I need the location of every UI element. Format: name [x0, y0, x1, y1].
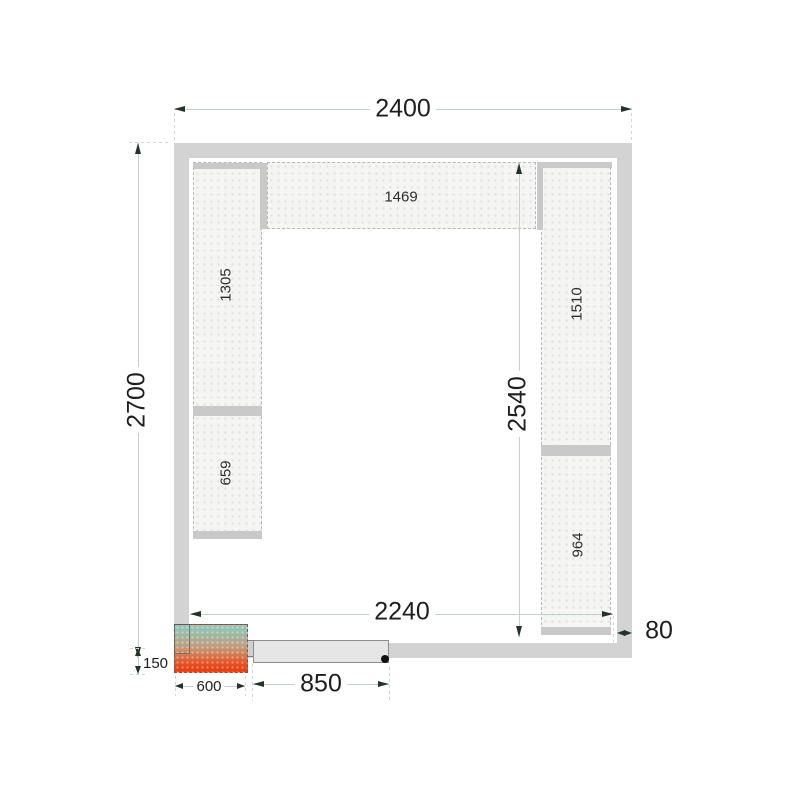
bracket-left-divider — [193, 406, 262, 416]
shelf-left-upper-label: 1305 — [218, 268, 235, 301]
dim-protrusion-ext-top — [130, 648, 146, 649]
bracket-right-divider — [541, 445, 611, 456]
arrow-left-icon — [174, 106, 185, 112]
dim-outer-width-ext-left — [174, 113, 175, 140]
bracket-right-top-vertical — [537, 162, 543, 230]
dim-outer-width-label: 2400 — [370, 96, 436, 123]
dim-door-ext-left — [252, 664, 253, 701]
shelf-right-lower-label: 964 — [570, 532, 587, 557]
wall-right — [617, 143, 632, 658]
arrow-left-icon — [190, 611, 201, 617]
arrow-right-icon — [621, 106, 632, 112]
dim-inner-depth-label: 2540 — [505, 371, 532, 437]
dim-protrusion-ext-bottom — [130, 674, 146, 675]
dim-unit-ext-left — [175, 676, 176, 696]
bracket-right-top-horizontal — [537, 162, 612, 168]
bracket-right-bottom — [541, 627, 611, 635]
dim-protrusion-label: 150 — [141, 656, 170, 672]
dim-unit-width-label: 600 — [193, 679, 224, 695]
arrow-right-icon — [624, 630, 632, 636]
wall-top — [174, 143, 632, 158]
door-leaf — [253, 640, 389, 663]
arrow-up-icon — [516, 163, 522, 174]
arrow-down-icon — [516, 626, 522, 637]
dim-unit-ext-right — [245, 676, 246, 696]
door-handle-dot — [381, 655, 389, 663]
dim-wall-thickness-label: 80 — [640, 618, 678, 645]
arrow-right-icon — [378, 681, 389, 687]
wall-left — [174, 143, 189, 658]
bracket-left-top-vertical — [260, 163, 267, 229]
dim-door-width-label: 850 — [295, 671, 347, 698]
dim-door-ext-right — [389, 667, 390, 701]
arrow-left-icon — [175, 683, 183, 689]
dim-outer-width-ext-right — [631, 113, 632, 140]
wall-corner-outline — [174, 624, 190, 654]
arrow-right-icon — [602, 611, 613, 617]
dim-inner-width-label: 2240 — [369, 599, 435, 626]
arrow-right-icon — [237, 683, 245, 689]
shelf-top-label: 1469 — [384, 189, 417, 206]
bracket-left-bottom — [193, 531, 262, 539]
shelf-left-lower-label: 659 — [218, 460, 235, 485]
arrow-up-icon — [135, 143, 141, 154]
shelf-right-column — [541, 162, 611, 635]
bracket-left-top-horizontal — [193, 163, 267, 169]
dim-inner-width-ext-right — [613, 616, 614, 642]
shelf-right-upper-label: 1510 — [569, 287, 586, 320]
dim-outer-depth-label: 2700 — [124, 367, 151, 433]
cold-room-plan: 1469 1305 659 1510 964 2400 2700 2540 22… — [0, 0, 800, 800]
arrow-left-icon — [253, 681, 264, 687]
arrow-up-icon — [135, 648, 141, 656]
